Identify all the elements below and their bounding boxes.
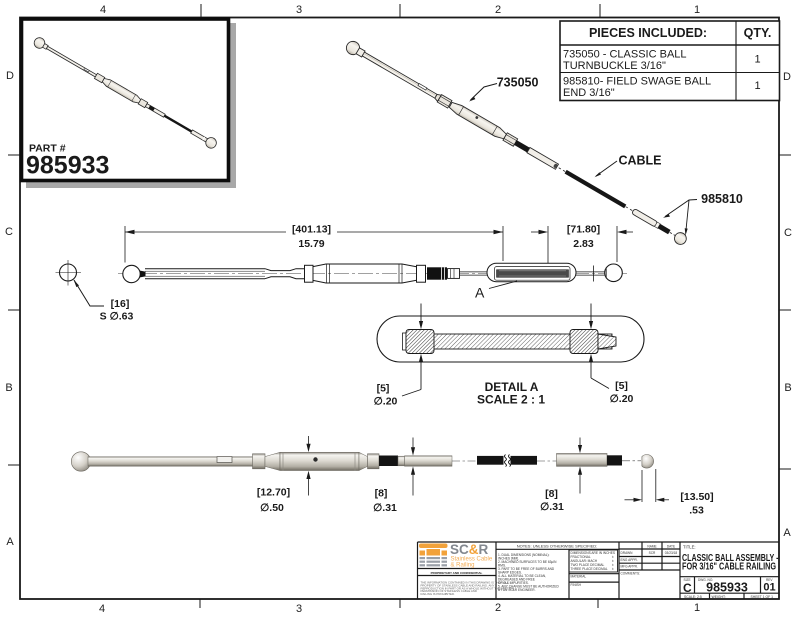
svg-text:B: B [5,382,12,394]
svg-text:3: 3 [296,4,302,16]
svg-text:735050: 735050 [497,76,539,90]
svg-text:MATERIAL: MATERIAL [571,575,587,579]
svg-text:BY AN SC&R ENGINEER.: BY AN SC&R ENGINEER. [498,588,536,592]
svg-text:01: 01 [763,582,775,594]
svg-text:4: 4 [99,603,105,615]
svg-text:±: ± [612,567,614,571]
svg-text:RAILING IS PROHIBITED.: RAILING IS PROHIBITED. [421,592,456,596]
svg-text:735050 - CLASSIC BALL: 735050 - CLASSIC BALL [563,49,687,61]
svg-text:[13.50]: [13.50] [680,491,713,503]
svg-text:B: B [784,382,791,394]
svg-text:[16]: [16] [111,298,130,310]
svg-text:PIECES INCLUDED:: PIECES INCLUDED: [589,26,707,40]
svg-text:SCALE: 2:5: SCALE: 2:5 [684,595,702,599]
svg-text:[8]: [8] [545,488,558,500]
svg-text:2.83: 2.83 [573,238,594,250]
svg-text:.53: .53 [689,505,704,517]
svg-text:1: 1 [754,54,760,66]
svg-text:4: 4 [100,4,106,16]
svg-text:∅.20: ∅.20 [610,393,634,405]
svg-text:FINISH: FINISH [571,583,582,587]
svg-text:NOTES: UNLESS OTHERWISE SPECI: NOTES: UNLESS OTHERWISE SPECIFIED: [517,544,598,549]
svg-text:2: 2 [495,602,501,614]
svg-text:END 3/16": END 3/16" [563,87,615,99]
svg-text:QTY.: QTY. [744,26,772,40]
svg-text:COMMENTS:: COMMENTS: [621,572,641,576]
svg-text:985810- FIELD SWAGE BALL: 985810- FIELD SWAGE BALL [563,76,711,88]
svg-text:∅.50: ∅.50 [260,502,284,514]
svg-text:[8]: [8] [375,488,388,500]
svg-text:FOR 3/16" CABLE RAILING: FOR 3/16" CABLE RAILING [682,561,776,572]
svg-text:NAME: NAME [647,545,656,549]
svg-text:CABLE: CABLE [618,154,661,168]
svg-text:DATE: DATE [667,545,675,549]
svg-text:THREE PLACE DECIMAL: THREE PLACE DECIMAL [571,567,608,571]
svg-text:1: 1 [694,602,700,614]
svg-text:03/23/18: 03/23/18 [665,551,678,555]
svg-text:PROPRIETARY AND CONFIDENTIAL: PROPRIETARY AND CONFIDENTIAL [431,571,483,575]
svg-text:SHEET 1 OF 1: SHEET 1 OF 1 [751,595,774,599]
svg-text:D: D [783,71,791,83]
svg-text:& Railing: & Railing [451,563,475,569]
svg-text:15.79: 15.79 [298,238,324,250]
svg-text:985933: 985933 [26,152,109,180]
svg-text:3: 3 [296,603,302,615]
svg-text:[12.70]: [12.70] [257,487,290,499]
svg-text:WEIGHT:: WEIGHT: [712,595,726,599]
svg-text:SC&R: SC&R [450,542,489,557]
svg-text:C: C [683,581,692,595]
svg-text:985933: 985933 [706,581,748,595]
svg-text:[5]: [5] [377,383,390,395]
svg-text:∅.31: ∅.31 [540,501,564,513]
svg-text:A: A [783,527,791,539]
svg-text:985810: 985810 [701,192,743,206]
svg-text:SCR: SCR [649,551,656,555]
svg-text:[5]: [5] [615,380,628,392]
svg-text:A: A [475,285,485,301]
svg-text:A: A [6,536,14,548]
svg-text:2: 2 [495,4,501,16]
svg-text:DRAWN: DRAWN [621,551,634,555]
svg-text:∅.31: ∅.31 [373,502,397,514]
svg-text:S ∅.63: S ∅.63 [100,311,134,323]
svg-text:C: C [784,227,792,239]
svg-text:2. MACHINED SURFACES TO BE 63µ: 2. MACHINED SURFACES TO BE 63µIN [498,560,557,564]
svg-text:SCALE 2 : 1: SCALE 2 : 1 [477,393,545,407]
svg-text:TITLE:: TITLE: [683,544,696,549]
svg-text:TURNBUCKLE 3/16": TURNBUCKLE 3/16" [563,60,666,72]
svg-text:C: C [5,226,13,238]
svg-text:[71.80]: [71.80] [567,224,600,236]
svg-text:ENG APPR.: ENG APPR. [621,558,638,562]
svg-text:MFG APPR.: MFG APPR. [621,565,638,569]
svg-text:1: 1 [754,80,760,92]
svg-text:1: 1 [694,4,700,16]
svg-text:∅.20: ∅.20 [374,396,398,408]
svg-text:D: D [6,70,14,82]
svg-text:[401.13]: [401.13] [292,224,331,236]
